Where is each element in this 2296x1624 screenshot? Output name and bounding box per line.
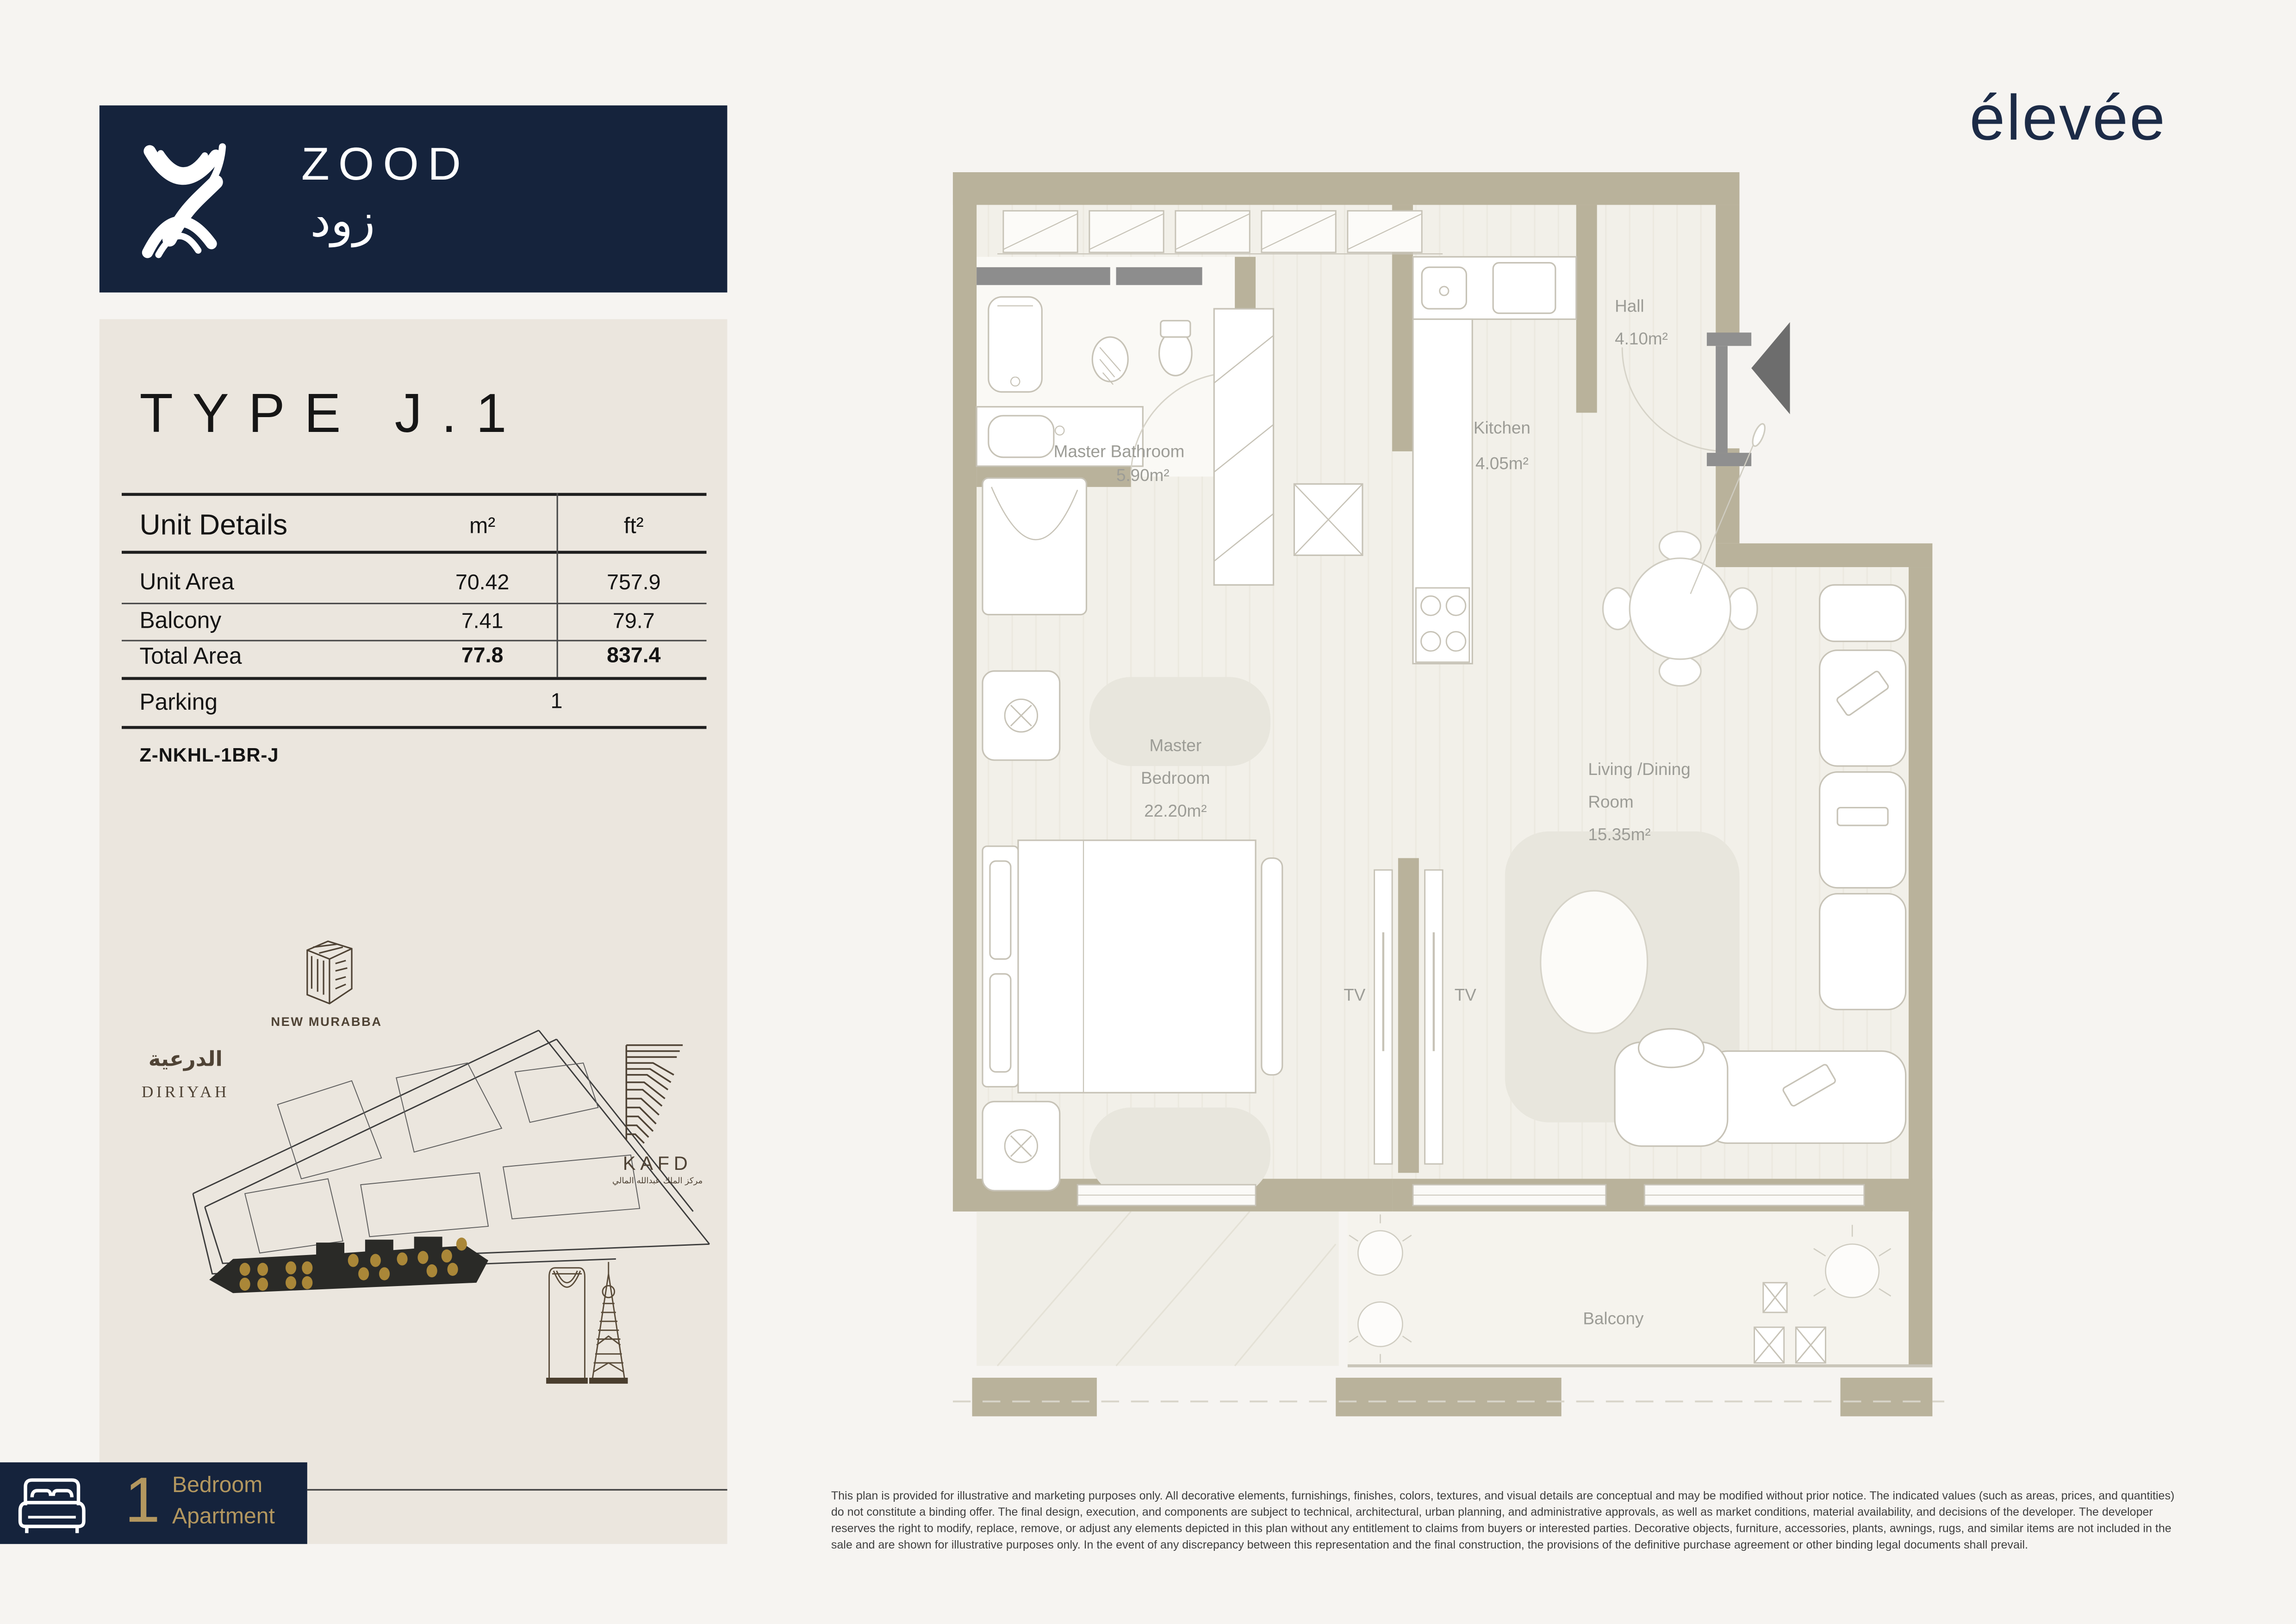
elevee-logo: élevée: [1970, 83, 2237, 156]
table-row-ft2: 757.9: [589, 572, 678, 595]
tv-label-left: TV: [1344, 985, 1366, 1004]
balcony-label: Balcony: [1583, 1309, 1644, 1328]
kitchen-label: Kitchen: [1474, 418, 1531, 437]
balcony-doors: [1077, 1185, 1864, 1206]
table-header-label: Unit Details: [139, 509, 287, 543]
badge-count: 1: [124, 1465, 160, 1538]
map-parcels: [245, 1063, 640, 1253]
kitchen-sink: [1422, 267, 1466, 309]
hall-label: Hall: [1615, 296, 1644, 315]
zood-logo-text-arabic: زود: [310, 194, 375, 248]
terrace-floor: [977, 1212, 1338, 1366]
unit-type-title: TYPE J.1: [139, 383, 526, 445]
floor-plan: Master Bathroom 5.90m²: [953, 160, 1944, 1425]
table-col-m2: m²: [445, 514, 519, 539]
entrance-arrow-icon: [1751, 322, 1790, 414]
unit-code: Z-NKHL-1BR-J: [139, 744, 279, 766]
kafd-icon: [623, 1042, 692, 1149]
table-rule: [122, 640, 707, 641]
sofa-seat: [1820, 894, 1906, 1010]
kafd-label: KAFD: [601, 1152, 714, 1174]
diriyah-label-arabic: الدرعية: [107, 1048, 264, 1072]
table-col-ft2: ft²: [597, 514, 671, 539]
kitchen-area: 4.05m²: [1475, 454, 1529, 473]
zood-logo-block: ZOOD زود: [100, 106, 728, 293]
kafd-label-arabic: مركز الملك عبدالله المالي: [591, 1177, 724, 1186]
badge-rule: [307, 1489, 728, 1491]
shaft: [1294, 484, 1363, 555]
bedroom-badge: 1 Bedroom Apartment: [0, 1462, 307, 1544]
table-row-label: Unit Area: [139, 570, 234, 597]
shower-screen: [1116, 267, 1202, 285]
zood-logo-icon: [132, 129, 273, 270]
table-row-m2: 77.8: [438, 644, 527, 668]
fridge: [1493, 263, 1556, 313]
window-row: [997, 211, 1443, 254]
table-rule-header: [122, 551, 707, 554]
bed: [983, 840, 1282, 1093]
landmark-towers: [543, 1259, 632, 1395]
bed-bench: [1262, 858, 1282, 1075]
bedroom-area: 22.20m²: [1144, 801, 1207, 820]
table-rule-total: [122, 677, 707, 680]
new-murabba-icon: [292, 935, 364, 1009]
hall-area: 4.10m²: [1615, 329, 1668, 348]
living-area: 15.35m²: [1588, 825, 1650, 844]
table-col-divider: [557, 493, 558, 677]
bed-icon: [15, 1473, 89, 1535]
sofa-seat: [1820, 772, 1906, 888]
bathtub: [989, 297, 1042, 392]
living-label-1: Living /Dining: [1588, 760, 1690, 779]
dining-table: [1630, 558, 1730, 659]
page: ZOOD زود élevée TYPE J.1 Unit Details m²…: [0, 0, 2296, 1624]
table-rule: [122, 603, 707, 604]
table-rule-top: [122, 493, 707, 497]
table-rule-bottom: [122, 726, 707, 729]
bedroom-label-1: Master: [1150, 736, 1202, 755]
sink: [989, 416, 1054, 457]
bedroom-label-2: Bedroom: [1141, 768, 1210, 787]
pillow: [990, 861, 1011, 959]
sofa-seat: [1820, 650, 1906, 766]
bathroom-area: 5.90m²: [1116, 466, 1170, 485]
diriyah-label: DIRIYAH: [107, 1084, 264, 1101]
new-murabba-label: NEW MURABBA: [223, 1014, 430, 1029]
disclaimer-text: This plan is provided for illustrative a…: [831, 1487, 2185, 1553]
table-row-label: Total Area: [139, 644, 242, 671]
project-building-footprint: [209, 1237, 488, 1293]
sofa-pillow: [1837, 808, 1888, 825]
table-row-ft2: 79.7: [589, 610, 678, 634]
pillow: [990, 974, 1011, 1072]
bathroom-label: Master Bathroom: [1054, 442, 1185, 461]
bench-pouf: [1089, 1107, 1270, 1196]
coffee-table: [1541, 891, 1648, 1033]
closet: [1214, 309, 1273, 585]
wardrobe: [983, 478, 1086, 615]
badge-line1: Bedroom: [172, 1473, 262, 1498]
table-row-label: Balcony: [139, 609, 221, 636]
living-label-2: Room: [1588, 793, 1633, 812]
side-table: [1820, 585, 1906, 642]
zood-logo-text: ZOOD: [301, 138, 470, 191]
parking-value: 1: [512, 690, 601, 714]
kingdom-tower: [549, 1268, 585, 1381]
tv-label-right: TV: [1455, 985, 1477, 1004]
shower-screen: [977, 267, 1110, 285]
table-row-m2: 7.41: [438, 610, 527, 634]
table-row-ft2: 837.4: [589, 644, 678, 668]
parking-label: Parking: [139, 690, 218, 717]
badge-line2: Apartment: [172, 1504, 275, 1530]
table-row-m2: 70.42: [438, 572, 527, 595]
faisaliah-tower: [592, 1262, 625, 1381]
